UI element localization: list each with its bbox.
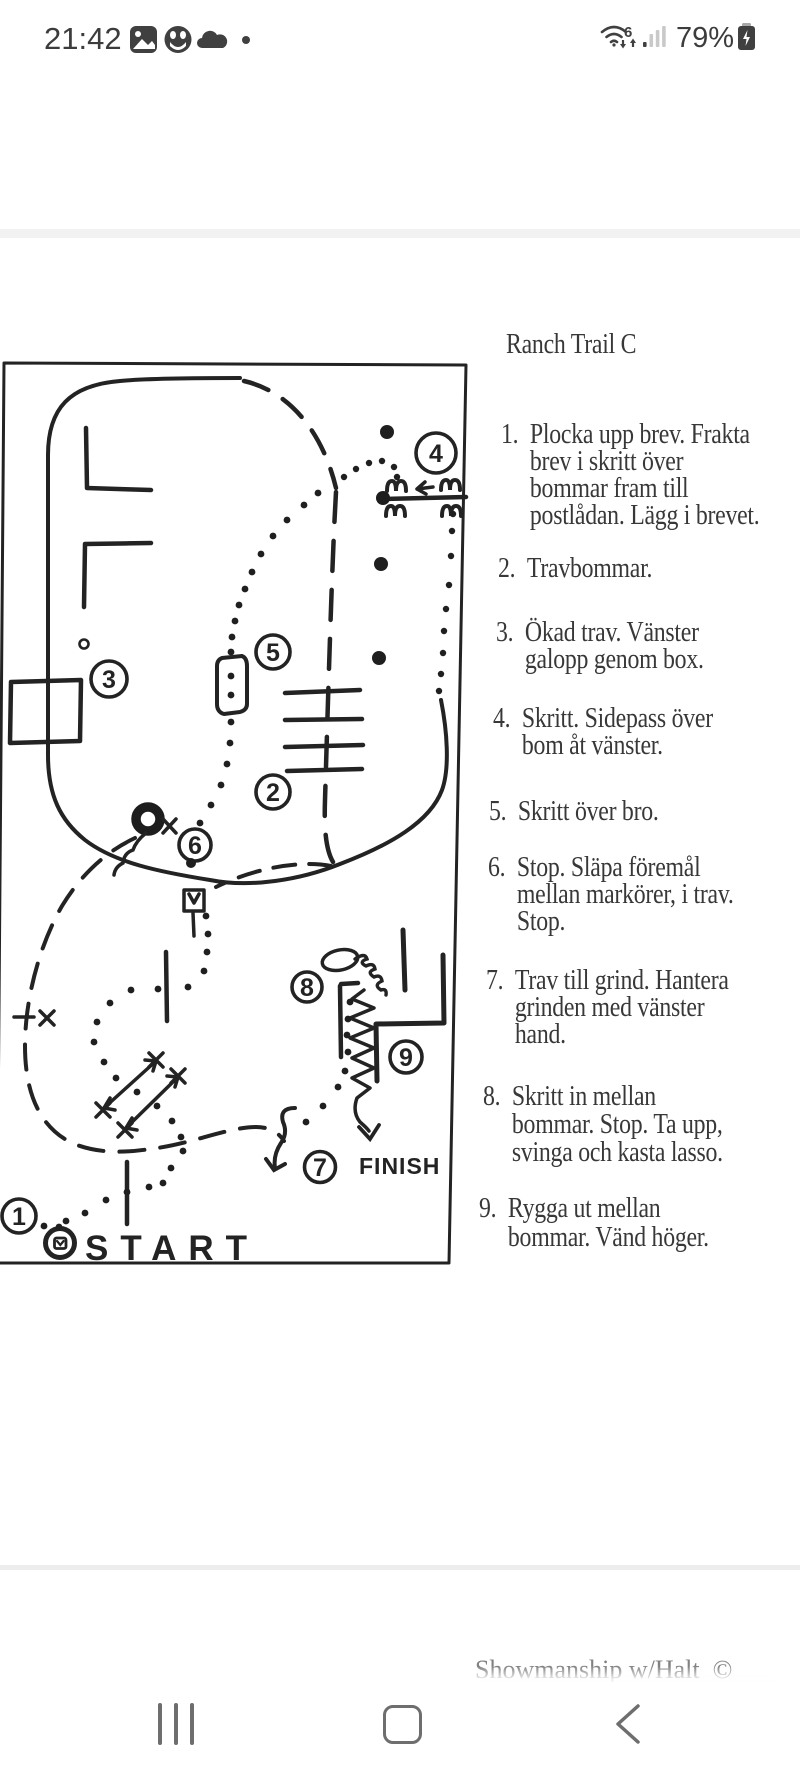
svg-text:START: START: [85, 1229, 259, 1268]
svg-text:FINISH: FINISH: [359, 1153, 440, 1179]
svg-text:7: 7: [313, 1154, 327, 1182]
svg-text:9: 9: [399, 1044, 413, 1072]
svg-text:2: 2: [266, 779, 280, 807]
svg-text:8: 8: [300, 974, 314, 1002]
svg-text:5: 5: [266, 639, 280, 667]
svg-text:3: 3: [102, 666, 116, 694]
svg-text:4: 4: [429, 440, 443, 468]
svg-text:1: 1: [12, 1203, 26, 1231]
svg-text:6: 6: [188, 832, 202, 860]
